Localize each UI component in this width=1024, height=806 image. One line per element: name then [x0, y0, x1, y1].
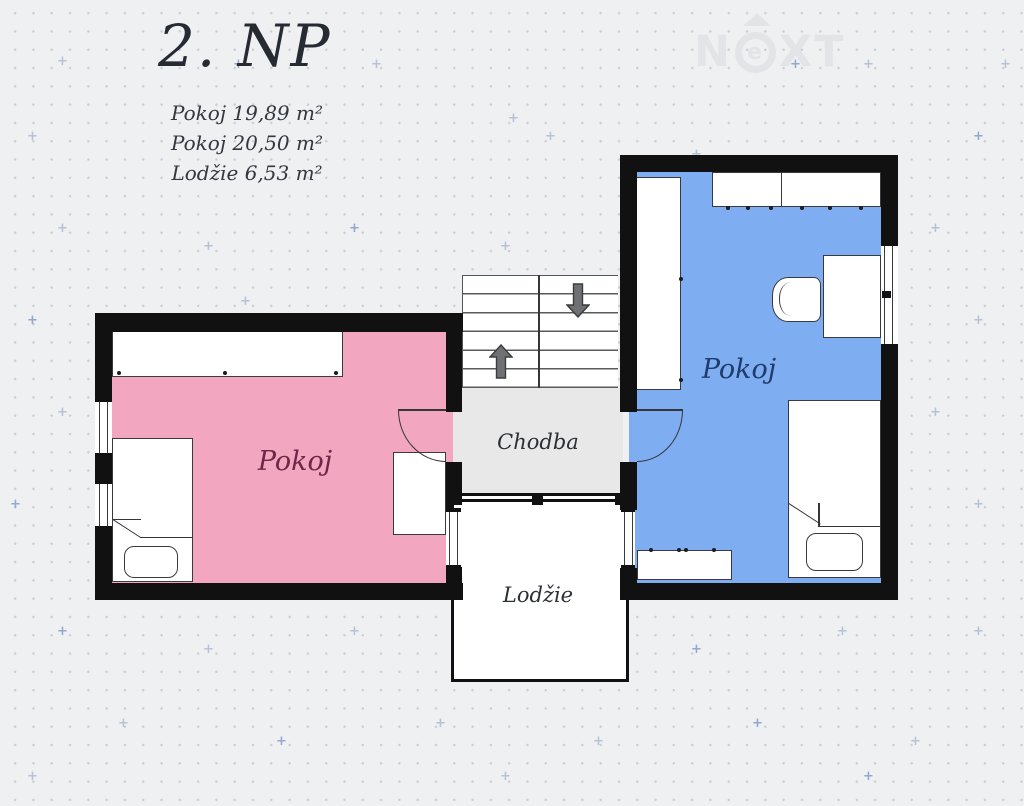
window-glass — [99, 399, 108, 456]
stairwell — [462, 275, 618, 388]
page-title: 2. NP — [158, 12, 332, 80]
knob — [769, 206, 773, 210]
wall — [620, 155, 898, 172]
window-glass — [99, 481, 108, 529]
area-legend: Pokoj 19,89 m² Pokoj 20,50 m² Lodžie 6,5… — [147, 98, 347, 188]
knob — [800, 206, 804, 210]
loggia-window-right — [621, 510, 636, 568]
room-left-label: Pokoj — [235, 446, 355, 477]
legend-item: Pokoj 19,89 m² — [147, 98, 347, 128]
stair-divider — [538, 275, 540, 388]
wall — [446, 462, 462, 495]
knob — [712, 548, 716, 552]
tall-wardrobe — [635, 177, 681, 390]
window — [95, 480, 112, 530]
wall — [95, 457, 112, 480]
loggia-window-left — [446, 510, 461, 568]
desk — [393, 452, 446, 535]
wardrobe — [112, 330, 343, 377]
knob — [334, 371, 338, 375]
knob — [828, 206, 832, 210]
knob — [726, 206, 730, 210]
window-glass — [624, 511, 633, 567]
wall — [446, 313, 462, 412]
blanket-edge-line — [140, 537, 192, 538]
wall-cap — [95, 398, 112, 402]
wall — [446, 567, 462, 585]
window-glass — [449, 511, 458, 567]
knob — [117, 371, 121, 375]
room-left-door-gap — [446, 412, 453, 462]
wall-cap — [95, 480, 112, 484]
blanket-fold-line — [113, 519, 141, 520]
wall — [95, 583, 463, 600]
pillow — [124, 546, 178, 578]
logo-roof-icon — [743, 13, 771, 26]
wall — [620, 568, 637, 583]
logo-letters-xt: XT — [779, 27, 845, 77]
blanket-fold-line — [818, 503, 820, 527]
logo-circled-e-icon: e — [735, 32, 776, 73]
legend-item: Lodžie 6,53 m² — [147, 158, 347, 188]
wall — [620, 155, 637, 412]
pillow — [806, 533, 863, 571]
desk — [823, 255, 881, 338]
wall — [95, 313, 112, 398]
loggia-label: Lodžie — [468, 583, 608, 607]
knob — [649, 548, 653, 552]
chair-backrest — [779, 282, 794, 316]
wall-cap — [95, 526, 112, 530]
legend-item: Pokoj 20,50 m² — [147, 128, 347, 158]
knob — [746, 206, 750, 210]
wall — [881, 155, 898, 242]
wall-cap — [881, 242, 898, 246]
upper-cabinets — [712, 172, 881, 207]
wall — [620, 583, 898, 600]
knob — [677, 548, 681, 552]
office-chair — [772, 277, 821, 322]
knob — [679, 277, 683, 281]
wall-cap — [881, 344, 898, 348]
logo-letter-n: N — [694, 27, 732, 77]
wall — [95, 313, 463, 332]
knob — [684, 548, 688, 552]
wall — [620, 462, 637, 510]
room-right-door-gap — [629, 412, 635, 462]
wall — [881, 348, 898, 583]
wall-cap — [446, 508, 461, 512]
window-mullion — [882, 291, 891, 298]
window — [95, 398, 112, 457]
hallway-label: Chodba — [468, 430, 608, 454]
stairs-up-arrow-icon — [489, 344, 513, 379]
blanket-edge-line — [818, 526, 880, 527]
logo-letters: N e XT — [694, 27, 845, 77]
cabinet-divider — [781, 173, 782, 206]
floor-plan-canvas: + + + + + + + + + + + + + + + + + + + + … — [0, 0, 1024, 806]
room-right-label: Pokoj — [679, 354, 799, 385]
knob — [223, 371, 227, 375]
knob — [859, 206, 863, 210]
next-logo: N e XT — [694, 14, 874, 80]
wall-cap — [95, 453, 112, 457]
low-cabinet — [637, 550, 732, 580]
stairs-down-arrow-icon — [566, 283, 590, 318]
